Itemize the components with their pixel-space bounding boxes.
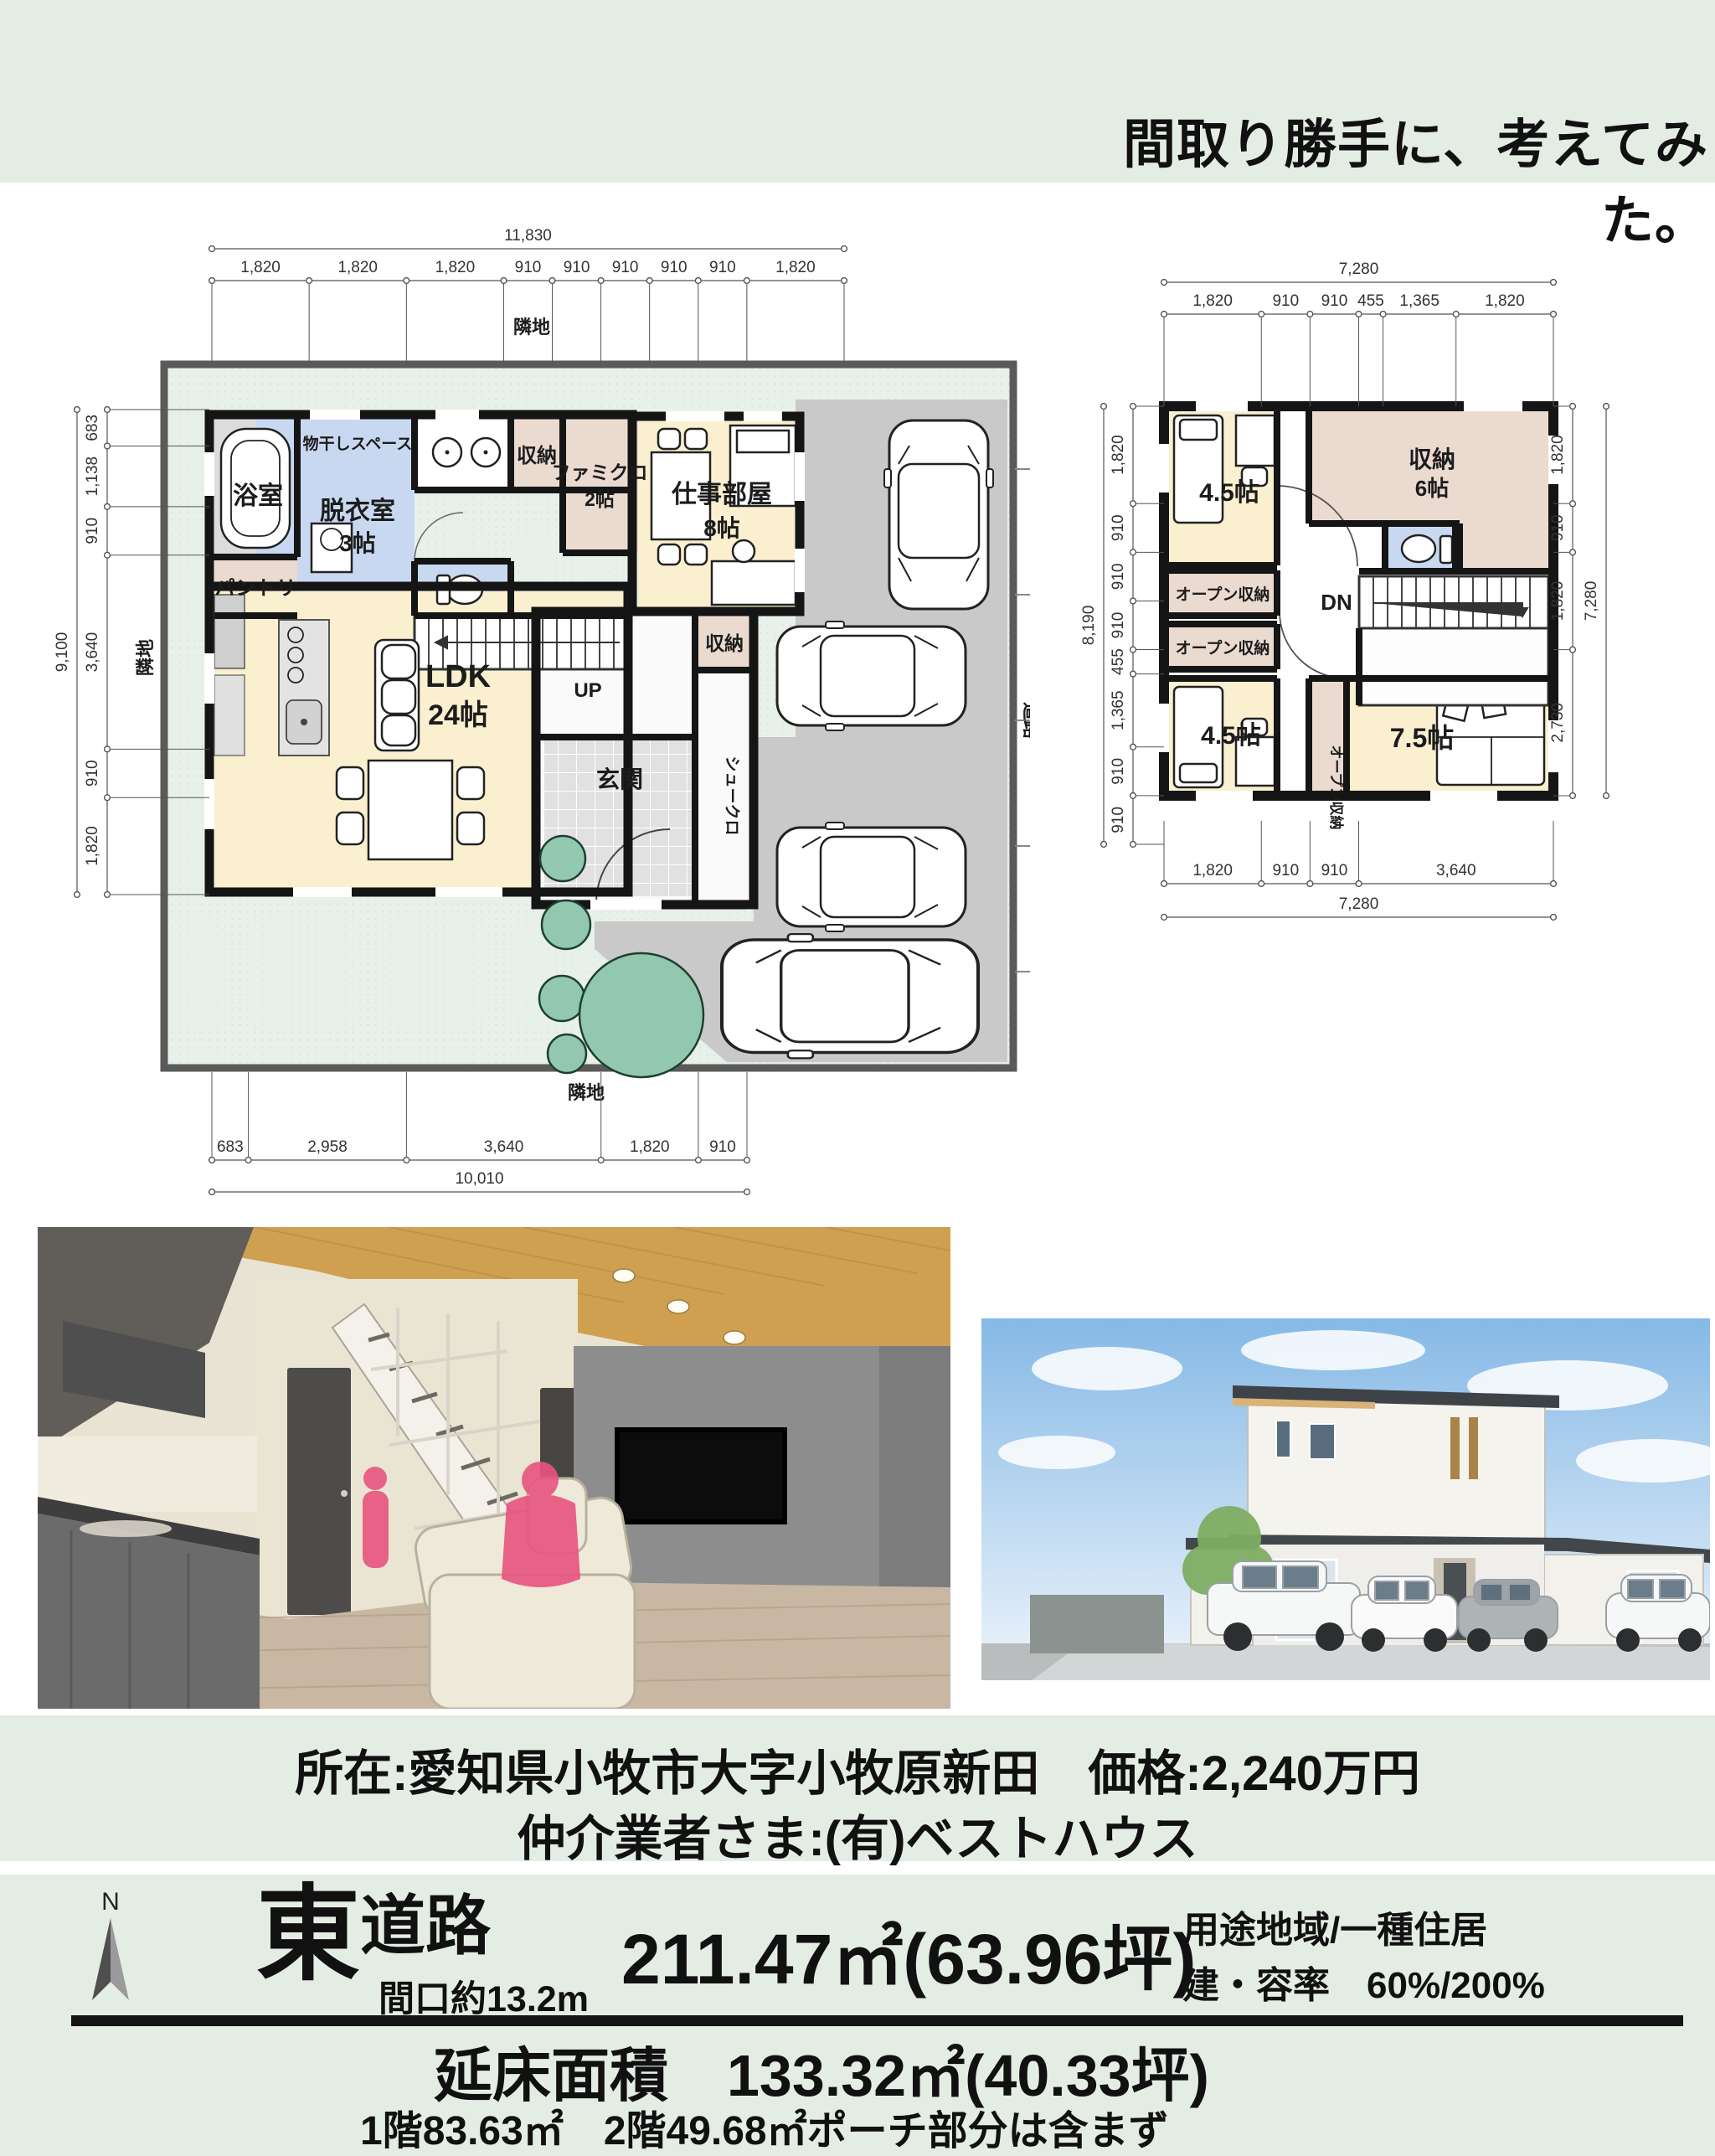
dim-circle: [105, 795, 111, 801]
room-label-2f-open2: オープン収納: [1176, 638, 1270, 658]
garden-wall: [1030, 1595, 1164, 1653]
stairs-down: [1359, 576, 1548, 705]
dim-text: 1,820: [1549, 581, 1567, 622]
dim-text: 3,640: [484, 1138, 524, 1156]
label-adjacent-top: 隣地: [513, 317, 550, 338]
dim-circle: [209, 1158, 215, 1163]
dim-circle: [1604, 404, 1609, 410]
dim-circle: [105, 746, 111, 752]
room-label-shoe-closet: シュークロ: [723, 756, 741, 835]
room-label-famiclo-size: 2帖: [585, 488, 615, 510]
dim-circle: [549, 278, 555, 284]
dim-text: 455: [1110, 648, 1127, 675]
dim-circle: [1161, 881, 1167, 887]
dim-text: 1,820: [1485, 292, 1525, 310]
frontage: 間口約13.2m: [379, 1970, 589, 2022]
dim-circle: [1130, 404, 1136, 410]
room-label-entrance: 玄関: [596, 766, 643, 792]
dim-circle: [1130, 598, 1136, 604]
dim-circle: [209, 278, 215, 284]
dim-text: 455: [1357, 292, 1384, 310]
dim-text: 910: [564, 259, 590, 276]
dim-text: 1,820: [1110, 435, 1127, 475]
dim-circle: [404, 278, 409, 284]
room-label-2f-room2: 4.5帖: [1201, 722, 1261, 750]
dim-circle: [744, 278, 749, 284]
room-label-dressing: 脱衣室: [320, 497, 395, 525]
dim-text: 1,820: [1549, 435, 1567, 475]
dim-circle: [75, 407, 80, 413]
label-adjacent-bottom: 隣地: [568, 1082, 605, 1103]
dim-text: 1,365: [1110, 690, 1127, 730]
dim-circle: [1101, 842, 1107, 848]
dim-text: 910: [1110, 807, 1127, 833]
dim-circle: [1259, 312, 1264, 317]
dim-text: 7,280: [1583, 581, 1600, 622]
dim-circle: [1551, 881, 1557, 887]
floor-plan-1f: 浴室 物干しスペース 脱衣室 3帖 収納 ファミクロ 2帖 パントリ 仕事部屋 …: [42, 201, 1030, 1231]
label-dn: DN: [1321, 590, 1352, 615]
land-area: 211.47㎡(63.96坪): [621, 1903, 1196, 2004]
dim-text: 910: [1272, 292, 1299, 310]
dim-circle: [245, 1158, 251, 1163]
dim-text: 7,280: [1339, 895, 1379, 913]
dim-text: 2,958: [307, 1138, 348, 1156]
room-label-2f-open3: オープン収納: [1328, 745, 1345, 830]
page-title: 間取り勝手に、考えてみた。: [1038, 102, 1708, 255]
dim-circle: [1604, 793, 1609, 799]
dim-text: 2,730: [1549, 703, 1567, 743]
dim-circle: [842, 246, 847, 252]
coverage-ratio: 建・容率 60%/200%: [1182, 1955, 1545, 2009]
dim-text: 683: [217, 1138, 244, 1156]
dim-chain-1f-top: 1,8201,8201,8209109109109109101,82011,83…: [209, 227, 847, 364]
label-up: UP: [574, 679, 601, 702]
car-icon: [777, 823, 966, 931]
compass-icon: N: [77, 1888, 144, 2012]
dim-circle: [105, 407, 111, 413]
dim-text: 8,190: [1080, 606, 1098, 646]
dim-circle: [105, 552, 111, 558]
room-label-ldk-size: 24帖: [428, 699, 488, 731]
room-label-2f-storage: 収納: [1409, 446, 1455, 472]
dim-circle: [209, 1189, 215, 1195]
dim-text: 910: [612, 259, 639, 276]
room-label-dressing-size: 3帖: [339, 530, 376, 556]
dim-text: 910: [1110, 514, 1127, 541]
room-label-2f-room1: 4.5帖: [1199, 479, 1259, 507]
zoning: 用途地域/一種住居: [1182, 1900, 1487, 1953]
dim-circle: [1551, 915, 1557, 921]
dim-text: 910: [709, 259, 736, 276]
dim-text: 1,365: [1399, 292, 1439, 310]
dim-text: 1,820: [435, 259, 476, 276]
dim-circle: [1570, 501, 1576, 507]
room-label-entrance-storage: 収納: [705, 632, 744, 654]
dim-circle: [105, 503, 111, 509]
dim-text: 910: [1110, 564, 1127, 591]
dim-circle: [598, 278, 604, 284]
label-adjacent-left: 隣地: [135, 639, 156, 676]
dim-text: 910: [1549, 514, 1567, 541]
room-label-2f-open1: オープン収納: [1176, 585, 1270, 604]
property-agent: 仲介業者さま:(有)ベストハウス: [0, 1799, 1715, 1870]
room-label-drying: 物干しスペース: [303, 434, 413, 453]
dim-text: 3,640: [1436, 862, 1476, 879]
dim-circle: [1130, 842, 1136, 848]
dim-circle: [1453, 312, 1459, 317]
dim-circle: [842, 278, 847, 284]
dim-text: 683: [84, 415, 101, 441]
dim-circle: [598, 1158, 604, 1163]
room-label-2f-storage-size: 6帖: [1415, 476, 1449, 501]
dim-text: 1,820: [1192, 292, 1233, 310]
dim-circle: [1356, 312, 1362, 317]
dim-chain-2f-left: 1,8209109109104551,3659109108,190: [1080, 404, 1164, 848]
room-label-bath: 浴室: [233, 482, 283, 510]
dim-text: 910: [661, 259, 688, 276]
dim-circle: [1570, 404, 1576, 410]
road-word: 道路: [360, 1893, 491, 1958]
dim-text: 9,100: [54, 632, 71, 673]
dim-text: 1,820: [240, 259, 281, 276]
dim-circle: [1161, 915, 1167, 921]
dim-circle: [1161, 280, 1167, 286]
room-label-famiclo: ファミクロ: [552, 462, 648, 483]
dim-chain-2f-right: 1,8209101,8202,7307,280: [1549, 404, 1609, 799]
car-icon: [722, 934, 978, 1058]
floor-plan-2f: 4.5帖 収納 6帖 オープン収納 オープン収納 DN 4.5帖 オープン収納 …: [1070, 235, 1715, 972]
footer-divider: [71, 2015, 1683, 2026]
dim-circle: [1356, 881, 1362, 887]
dim-text: 910: [1110, 758, 1127, 785]
dim-circle: [306, 278, 312, 284]
dim-text: 910: [709, 1138, 736, 1156]
floor-area-breakdown: 1階83.63㎡ 2階49.68㎡ポーチ部分は含まず: [360, 2097, 1169, 2156]
dim-circle: [1259, 881, 1264, 887]
dim-circle: [1551, 280, 1557, 286]
dim-chain-2f-top: 1,8209109104551,3651,8207,280: [1161, 260, 1557, 406]
dim-circle: [1307, 312, 1313, 317]
room-label-work: 仕事部屋: [671, 480, 772, 508]
dim-circle: [501, 278, 507, 284]
car-icon: [777, 622, 966, 730]
dim-circle: [744, 1158, 750, 1163]
dim-circle: [105, 892, 111, 898]
room-label-pantry: パントリ: [214, 577, 296, 600]
tv-screen: [617, 1430, 785, 1522]
dim-circle: [1551, 312, 1557, 317]
dim-circle: [209, 246, 215, 252]
dim-circle: [1380, 312, 1386, 317]
dim-circle: [695, 278, 701, 284]
dim-circle: [1130, 792, 1136, 798]
dim-text: 910: [84, 760, 101, 787]
dim-circle: [744, 1189, 750, 1195]
dim-circle: [1570, 647, 1576, 652]
dim-circle: [1307, 881, 1313, 887]
dim-text: 910: [1321, 862, 1348, 879]
dim-circle: [404, 1158, 409, 1163]
dim-text: 3,640: [84, 632, 101, 673]
dim-text: 1,820: [1192, 862, 1233, 879]
dim-text: 910: [1321, 292, 1348, 310]
dim-text: 1,820: [337, 259, 378, 276]
dim-text: 11,830: [504, 227, 552, 245]
exterior-render-image: [981, 1318, 1710, 1680]
dim-circle: [1101, 404, 1107, 410]
dim-text: 910: [515, 259, 542, 276]
dim-circle: [1161, 312, 1167, 317]
car-icon: [884, 420, 993, 609]
dim-text: 1,138: [84, 456, 101, 497]
dim-circle: [1570, 549, 1576, 555]
dim-circle: [646, 278, 652, 284]
interior-render-image: [38, 1227, 950, 1709]
dim-circle: [696, 1158, 702, 1163]
dim-text: 1,820: [775, 259, 816, 276]
compass-n-label: N: [101, 1888, 120, 1916]
dim-circle: [1570, 793, 1576, 799]
dim-text: 910: [1110, 612, 1127, 639]
dim-circle: [1130, 744, 1136, 750]
dim-circle: [1130, 549, 1136, 555]
dim-text: 1,820: [84, 826, 101, 866]
dim-text: 1,820: [630, 1138, 670, 1156]
room-label-ldk: LDK: [425, 659, 492, 694]
dim-circle: [1130, 671, 1136, 677]
dim-circle: [75, 892, 80, 898]
dim-circle: [105, 443, 111, 449]
dim-chain-2f-bottom: 1,8209109103,6407,280: [1161, 821, 1557, 920]
dim-circle: [1130, 647, 1136, 652]
dim-text: 910: [84, 518, 101, 544]
road-direction: 東: [256, 1883, 360, 1987]
label-road: 道路: [1021, 702, 1030, 740]
dim-text: 7,280: [1339, 260, 1379, 278]
room-label-2f-room3: 7.5帖: [1390, 723, 1455, 753]
dim-circle: [1130, 501, 1136, 507]
dim-text: 910: [1272, 862, 1299, 879]
dim-chain-1f-bottom: 6832,9583,6401,82091010,010: [209, 1072, 750, 1194]
room-label-work-size: 8帖: [703, 515, 740, 541]
property-location-price: 所在:愛知県小牧市大字小牧原新田 価格:2,240万円: [0, 1734, 1715, 1804]
dim-text: 10,010: [455, 1170, 503, 1188]
